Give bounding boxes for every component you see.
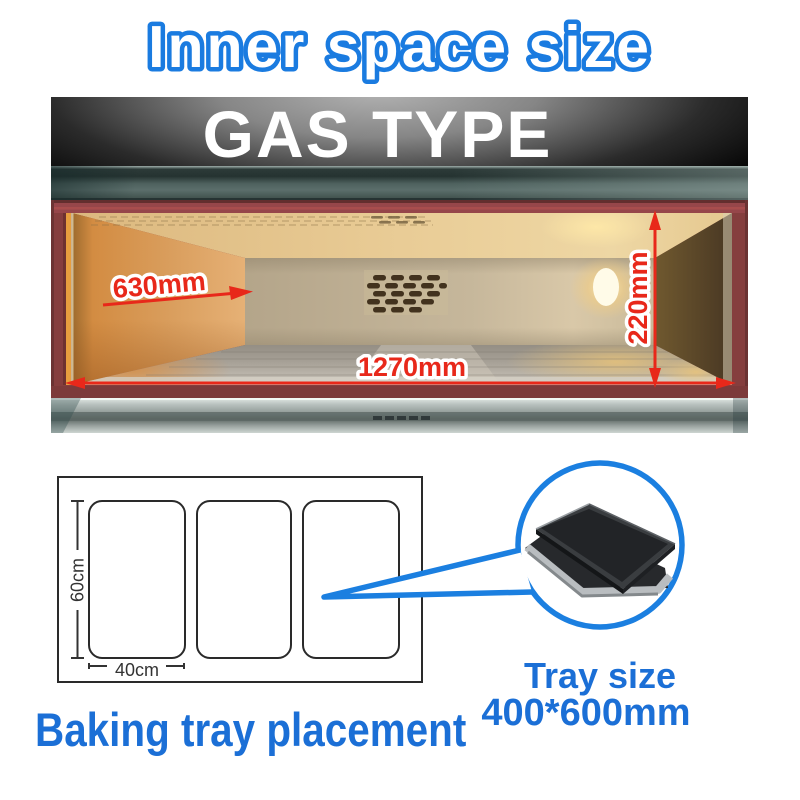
svg-text:40cm: 40cm [115, 660, 159, 680]
svg-text:220mm: 220mm [623, 251, 653, 344]
svg-text:1270mm: 1270mm [358, 352, 466, 382]
svg-text:Inner space size: Inner space size [148, 14, 652, 80]
svg-text:60cm: 60cm [68, 558, 88, 602]
